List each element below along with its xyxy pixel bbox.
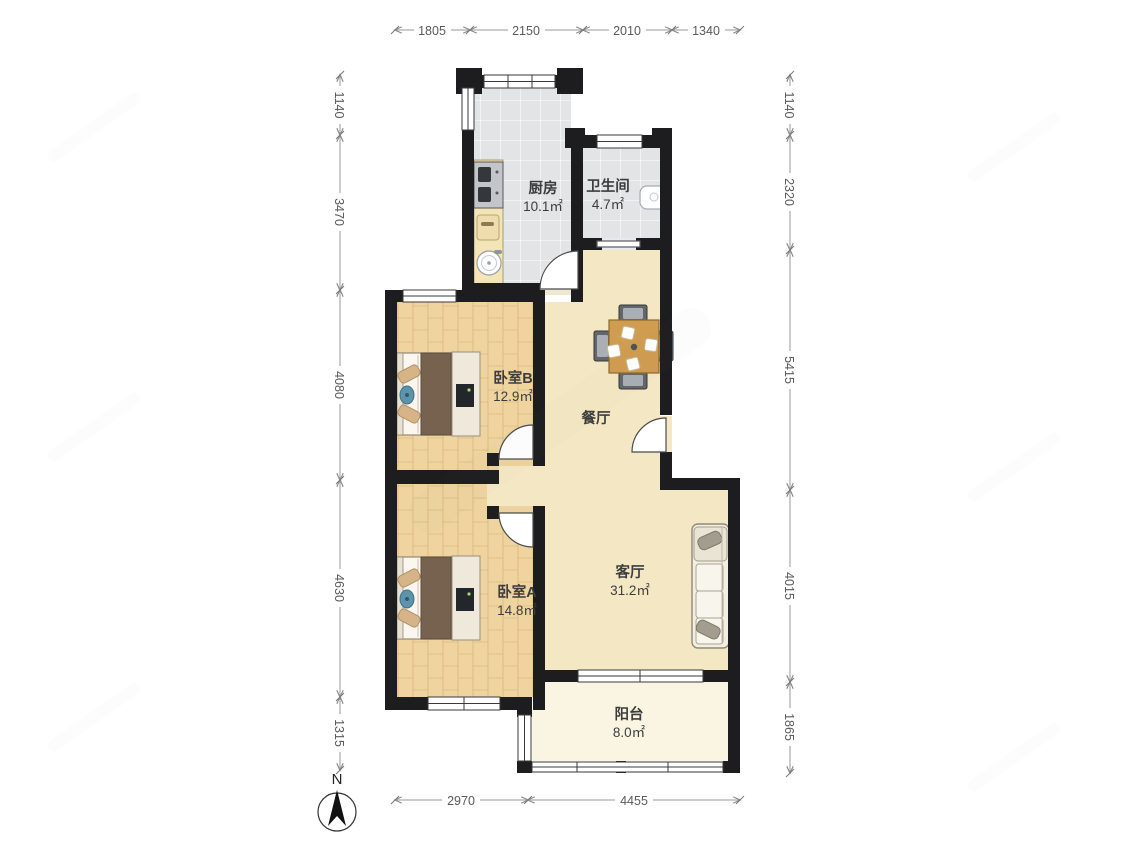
balcony-area: 8.0㎡ bbox=[613, 725, 646, 740]
bedroom-b-label: 卧室B bbox=[493, 369, 532, 387]
dim-right-0: 1140 bbox=[782, 92, 796, 119]
dim-right: 1140 2320 5415 4015 1865 bbox=[782, 71, 797, 777]
kitchen-area: 10.1㎡ bbox=[523, 199, 563, 214]
sink-icon bbox=[477, 250, 502, 275]
compass-needle bbox=[328, 790, 346, 826]
bathroom-area: 4.7㎡ bbox=[592, 197, 625, 212]
corner-post bbox=[565, 128, 585, 148]
kitchen-label: 厨房 bbox=[529, 179, 558, 197]
tv-icon bbox=[456, 588, 474, 611]
kitchen-top-window bbox=[484, 75, 555, 88]
dim-left-0: 1140 bbox=[332, 92, 346, 119]
living-area: 31.2㎡ bbox=[610, 583, 650, 598]
dim-left-1: 3470 bbox=[332, 198, 346, 226]
bathroom-top-window bbox=[597, 135, 642, 148]
dim-top-1: 2150 bbox=[512, 24, 540, 38]
living-label: 客厅 bbox=[615, 563, 645, 581]
bed-a-icon bbox=[396, 556, 480, 640]
dim-bottom-1: 4455 bbox=[620, 794, 648, 808]
bedroom-b-window bbox=[403, 290, 456, 302]
bathroom-sliding-door bbox=[597, 241, 640, 247]
balcony-label: 阳台 bbox=[615, 705, 644, 723]
cutting-board-icon bbox=[477, 215, 499, 240]
bedroom-b-area: 12.9㎡ bbox=[493, 389, 533, 404]
dim-left-3: 4630 bbox=[332, 574, 346, 602]
bed-b-icon bbox=[396, 352, 480, 436]
kitchen-left-window bbox=[462, 88, 474, 130]
dim-top-3: 1340 bbox=[692, 24, 720, 38]
north-label: N bbox=[332, 771, 343, 788]
living-balcony-window bbox=[578, 670, 703, 682]
dim-top-0: 1805 bbox=[418, 24, 446, 38]
balcony-left-window bbox=[518, 715, 531, 761]
floorplan-svg: 厨房 10.1㎡ 卫生间 4.7㎡ 卧室B 12.9㎡ 餐厅 客厅 31.2㎡ … bbox=[0, 0, 1125, 844]
balcony-bottom-window bbox=[532, 762, 723, 772]
dim-left-4: 1315 bbox=[332, 719, 346, 747]
north-arrow: N bbox=[318, 771, 356, 831]
dim-right-3: 4015 bbox=[782, 572, 796, 600]
dim-bottom: 2970 4455 bbox=[391, 793, 744, 808]
kitchen-counter-icon bbox=[474, 160, 503, 290]
dim-left: 1140 3470 4080 4630 1315 bbox=[332, 71, 347, 774]
dim-right-2: 5415 bbox=[782, 356, 796, 384]
dim-right-1: 2320 bbox=[782, 178, 796, 206]
corner-post bbox=[557, 68, 583, 94]
dim-right-4: 1865 bbox=[782, 713, 796, 741]
dim-bottom-0: 2970 bbox=[447, 794, 475, 808]
bedroom-a-label: 卧室A bbox=[497, 583, 537, 601]
sofa-icon bbox=[692, 524, 729, 648]
floorplan-page: 厨房 10.1㎡ 卫生间 4.7㎡ 卧室B 12.9㎡ 餐厅 客厅 31.2㎡ … bbox=[0, 0, 1125, 844]
bathroom-label: 卫生间 bbox=[586, 177, 630, 195]
stove-icon bbox=[474, 162, 503, 208]
dim-top-2: 2010 bbox=[613, 24, 641, 38]
bedroom-a-area: 14.8㎡ bbox=[497, 603, 537, 618]
dim-top: 1805 2150 2010 1340 bbox=[391, 23, 744, 38]
bedroom-a-window bbox=[428, 697, 500, 710]
corner-post bbox=[652, 128, 672, 148]
dim-left-2: 4080 bbox=[332, 371, 346, 399]
tv-icon bbox=[456, 384, 474, 407]
